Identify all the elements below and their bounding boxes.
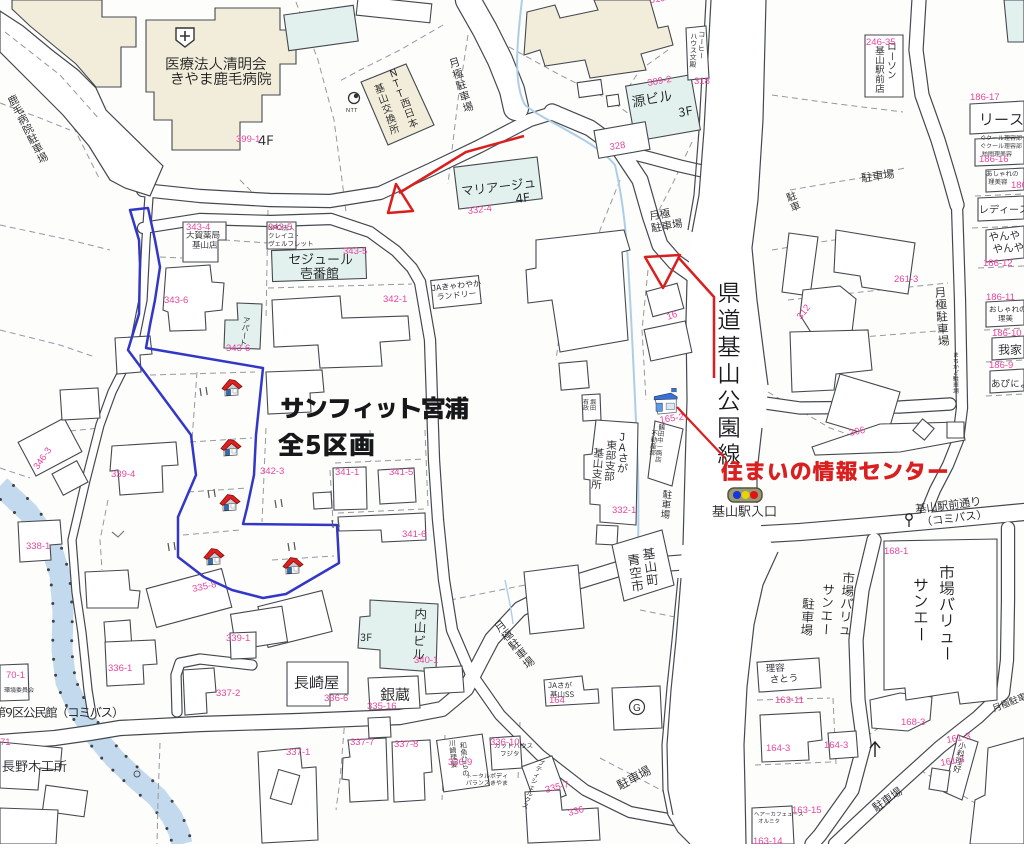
svg-text:335-16: 335-16	[367, 701, 397, 712]
svg-text:336-10: 336-10	[490, 737, 520, 748]
svg-text:342-3: 342-3	[260, 466, 284, 477]
svg-text:328: 328	[609, 140, 626, 153]
svg-text:339-1: 339-1	[226, 633, 250, 644]
svg-text:186-9: 186-9	[989, 360, 1013, 371]
svg-text:343-5: 343-5	[343, 246, 367, 257]
svg-text:343-5: 343-5	[268, 222, 292, 233]
svg-text:163-14: 163-14	[753, 836, 783, 844]
svg-text:336-9: 336-9	[448, 757, 472, 768]
svg-text:163-15: 163-15	[792, 805, 822, 816]
svg-text:341-5: 341-5	[389, 467, 413, 478]
svg-text:338-1: 338-1	[26, 541, 50, 552]
svg-text:186-11: 186-11	[986, 292, 1015, 303]
svg-text:164-3: 164-3	[824, 740, 848, 751]
svg-text:163-11: 163-11	[775, 695, 804, 706]
svg-text:186-12: 186-12	[983, 258, 1013, 269]
svg-text:399-1: 399-1	[236, 134, 260, 145]
svg-text:186-16: 186-16	[979, 154, 1009, 165]
svg-text:164-3: 164-3	[766, 743, 790, 754]
svg-text:70-1: 70-1	[6, 670, 25, 681]
svg-text:337-1: 337-1	[286, 747, 310, 758]
svg-text:71: 71	[0, 737, 11, 748]
svg-text:343-6: 343-6	[164, 295, 188, 306]
svg-text:164: 164	[549, 695, 565, 706]
svg-text:341-6: 341-6	[402, 529, 426, 540]
svg-text:337-7: 337-7	[350, 737, 374, 748]
svg-text:168-3: 168-3	[901, 717, 925, 728]
svg-text:186-10: 186-10	[992, 328, 1022, 339]
svg-text:186: 186	[1011, 180, 1024, 191]
svg-text:G: G	[633, 703, 641, 714]
svg-text:343-4: 343-4	[186, 222, 210, 233]
svg-text:340-1: 340-1	[414, 655, 438, 666]
svg-text:261-3: 261-3	[894, 274, 918, 285]
svg-text:337-8: 337-8	[394, 739, 418, 750]
svg-text:246-35: 246-35	[866, 37, 896, 48]
svg-text:332-1: 332-1	[612, 505, 636, 516]
svg-text:343-6: 343-6	[226, 343, 250, 354]
svg-text:339-4: 339-4	[111, 469, 135, 480]
svg-text:342-1: 342-1	[383, 294, 407, 305]
svg-text:318: 318	[694, 76, 710, 87]
svg-text:336-1: 336-1	[108, 663, 132, 674]
svg-text:186-17: 186-17	[970, 92, 1000, 103]
svg-text:336-6: 336-6	[324, 693, 348, 704]
svg-text:337-2: 337-2	[216, 688, 240, 699]
svg-text:168-1: 168-1	[884, 546, 908, 557]
svg-text:341-1: 341-1	[335, 467, 359, 478]
